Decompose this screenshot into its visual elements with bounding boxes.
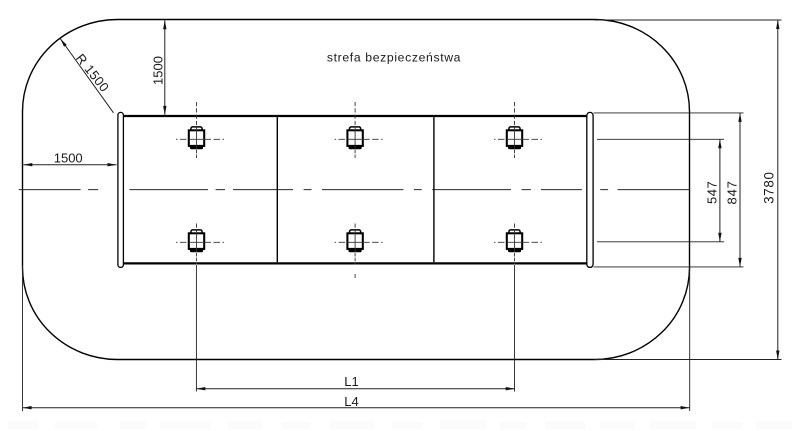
svg-text:L4: L4 xyxy=(344,394,358,409)
svg-text:3780: 3780 xyxy=(762,171,777,204)
svg-text:strefa bezpieczeństwa: strefa bezpieczeństwa xyxy=(327,51,461,65)
svg-text:1500: 1500 xyxy=(54,150,83,165)
svg-text:L1: L1 xyxy=(344,374,358,389)
svg-text:847: 847 xyxy=(725,180,740,204)
svg-text:1500: 1500 xyxy=(151,56,166,85)
svg-text:547: 547 xyxy=(705,181,720,204)
